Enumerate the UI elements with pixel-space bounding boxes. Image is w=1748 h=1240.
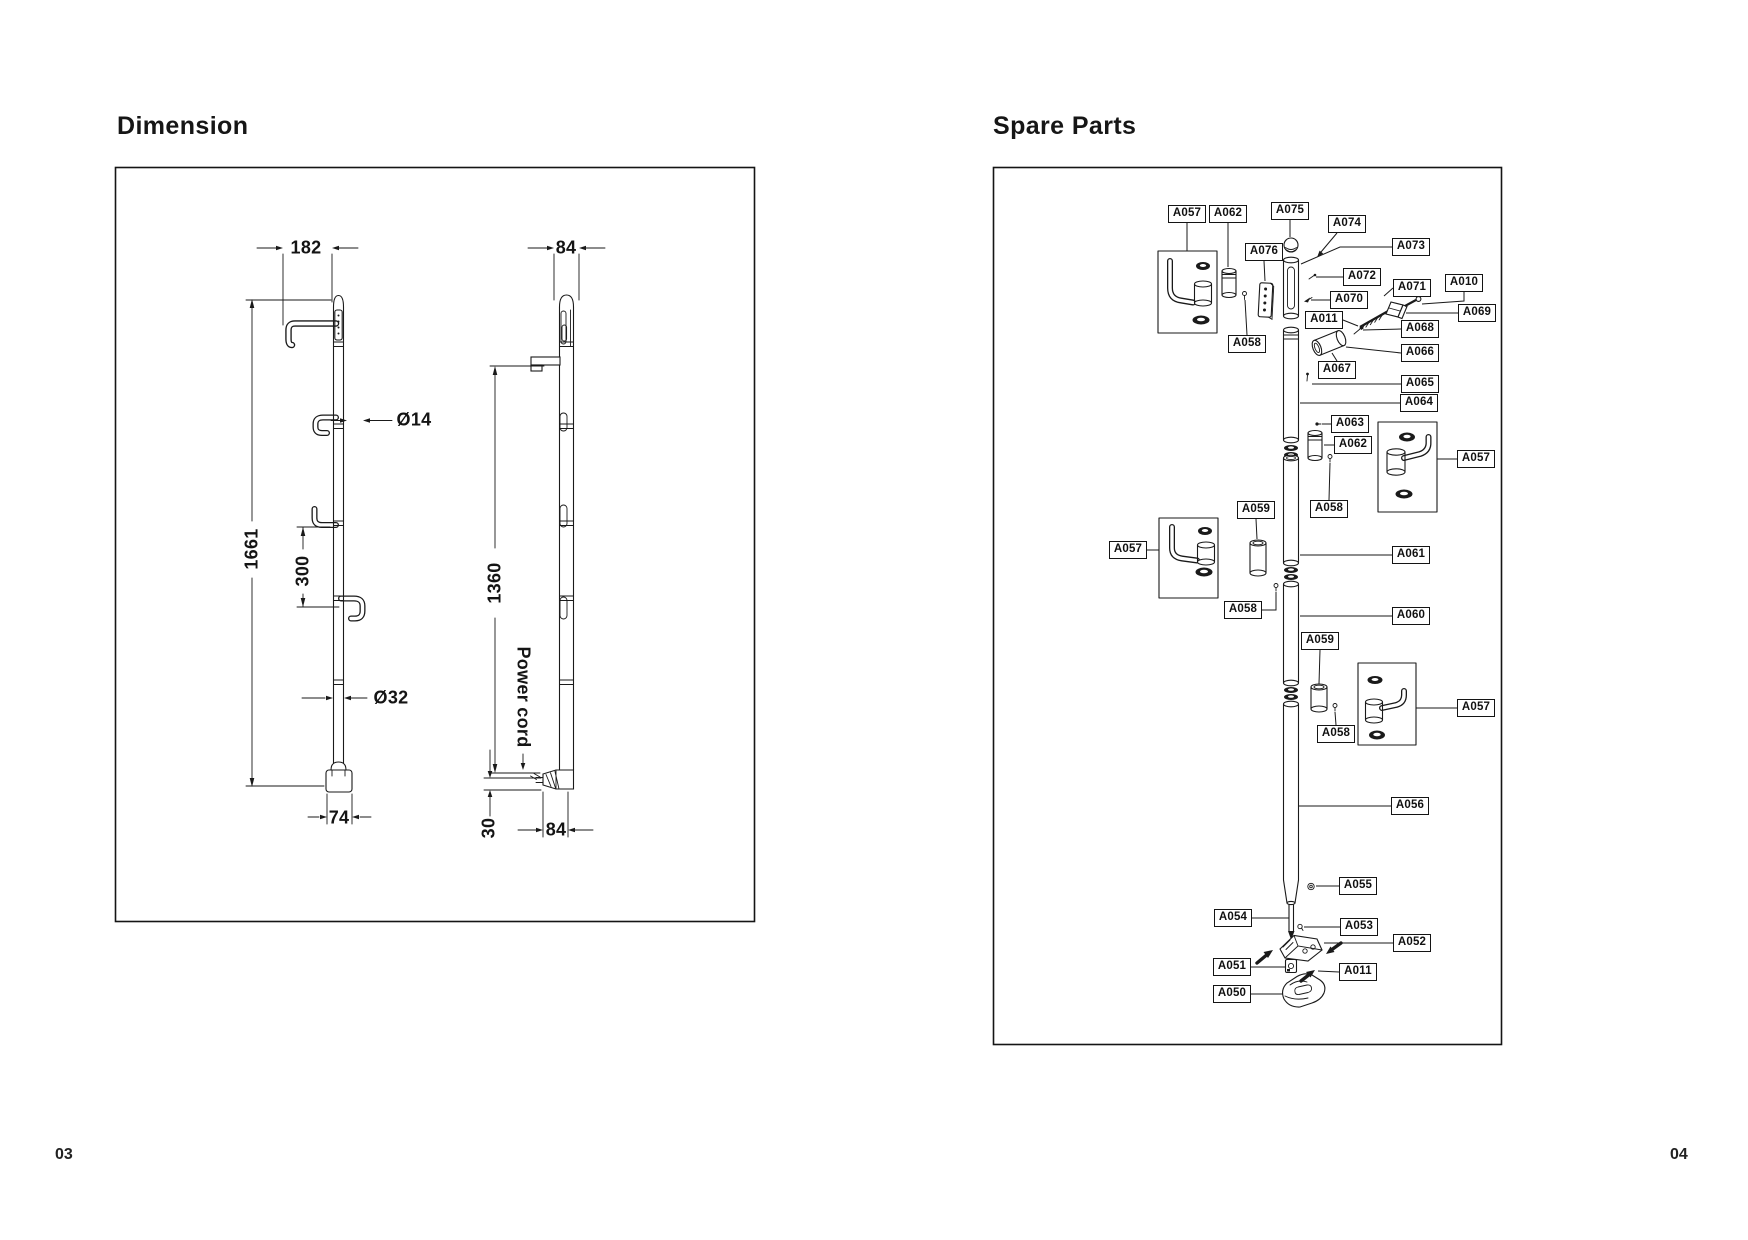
part-label-a056: A056: [1391, 797, 1429, 815]
part-label-a057: A057: [1109, 541, 1147, 559]
part-label-a062: A062: [1209, 205, 1247, 223]
part-label-a057: A057: [1457, 450, 1495, 468]
spare-parts-panel-title: Spare Parts: [993, 112, 1136, 141]
dim-cord-offset: 30: [479, 818, 500, 839]
part-label-a071: A071: [1393, 279, 1431, 297]
dimension-panel-title: Dimension: [117, 112, 248, 141]
power-cord-label: Power cord: [513, 646, 534, 747]
part-label-a058: A058: [1310, 500, 1348, 518]
page-number-left: 03: [55, 1146, 73, 1164]
part-label-a058: A058: [1224, 601, 1262, 619]
dim-top-width-front: 182: [291, 238, 322, 259]
part-label-a011: A011: [1339, 963, 1377, 981]
part-label-a073: A073: [1392, 238, 1430, 256]
part-label-a065: A065: [1401, 375, 1439, 393]
part-label-a011: A011: [1305, 311, 1343, 329]
part-label-a072: A072: [1343, 268, 1381, 286]
part-label-a059: A059: [1301, 632, 1339, 650]
dim-pole-diameter: Ø32: [374, 688, 409, 709]
part-label-a070: A070: [1330, 291, 1368, 309]
page-number-right: 04: [1670, 1146, 1688, 1164]
part-label-a061: A061: [1392, 546, 1430, 564]
part-label-a076: A076: [1245, 243, 1283, 261]
part-label-a054: A054: [1214, 909, 1252, 927]
front-view-drawing: [289, 296, 363, 793]
dim-top-width-side: 84: [556, 238, 577, 259]
part-label-a052: A052: [1393, 934, 1431, 952]
part-label-a060: A060: [1392, 607, 1430, 625]
part-label-a055: A055: [1339, 877, 1377, 895]
part-label-a059: A059: [1237, 501, 1275, 519]
manual-page: { "page": { "left_page_number": "03", "r…: [0, 0, 1748, 1240]
part-label-a069: A069: [1458, 304, 1496, 322]
technical-drawing-canvas: [0, 0, 1748, 1240]
part-label-a063: A063: [1331, 415, 1369, 433]
part-label-a051: A051: [1213, 958, 1251, 976]
part-label-a067: A067: [1318, 361, 1356, 379]
dim-base-width: 74: [329, 808, 350, 829]
part-label-a057: A057: [1168, 205, 1206, 223]
part-label-a064: A064: [1400, 394, 1438, 412]
part-label-a058: A058: [1228, 335, 1266, 353]
part-label-a050: A050: [1213, 985, 1251, 1003]
part-label-a066: A066: [1401, 344, 1439, 362]
part-label-a057: A057: [1457, 699, 1495, 717]
part-label-a058: A058: [1317, 725, 1355, 743]
part-label-a010: A010: [1445, 274, 1483, 292]
dim-total-height: 1661: [242, 528, 263, 569]
dim-hook-diameter: Ø14: [397, 410, 432, 431]
dimension-annotations: [246, 246, 605, 837]
dim-mount-height: 1360: [485, 562, 506, 603]
side-view-drawing: [531, 295, 574, 789]
part-label-a075: A075: [1271, 202, 1309, 220]
part-label-a062: A062: [1334, 436, 1372, 454]
part-label-a068: A068: [1401, 320, 1439, 338]
dim-hook-spacing: 300: [293, 556, 314, 587]
dim-bottom-width: 84: [546, 820, 567, 841]
part-label-a053: A053: [1340, 918, 1378, 936]
part-label-a074: A074: [1328, 215, 1366, 233]
